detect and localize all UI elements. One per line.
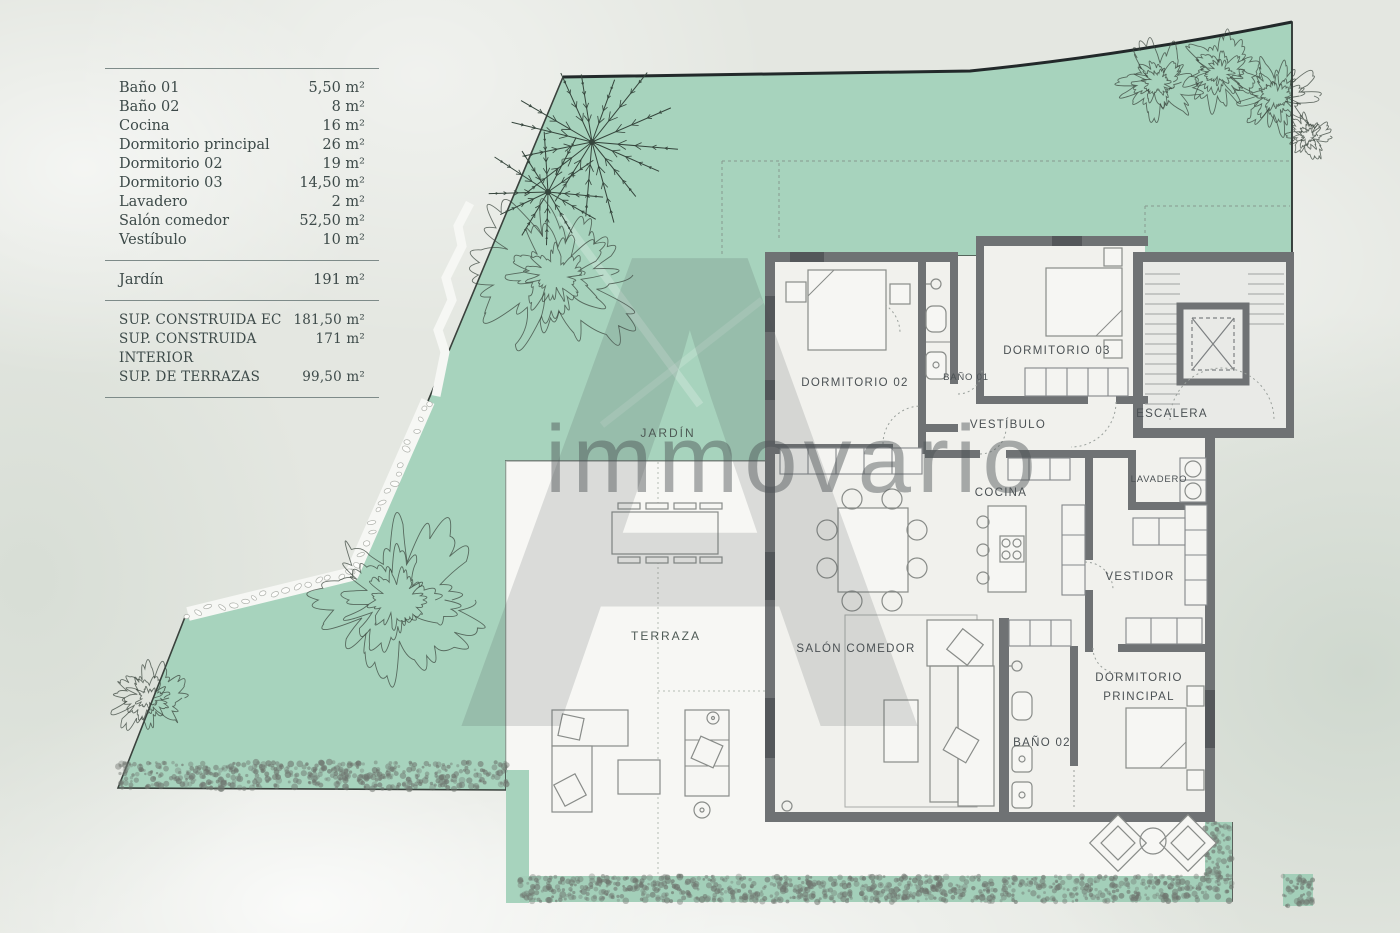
label-bano-01: BAÑO 01 — [943, 372, 989, 383]
legend-label: Dormitorio 02 — [119, 155, 223, 174]
legend-row: SUP. DE TERRAZAS99,50 m² — [119, 368, 365, 387]
label-vestidor: VESTIDOR — [1105, 571, 1174, 583]
legend-value: 5,50 m² — [299, 79, 365, 98]
legend-row: Baño 028 m² — [119, 98, 365, 117]
legend-value: 52,50 m² — [289, 212, 365, 231]
legend-value: 26 m² — [312, 136, 365, 155]
label-escalera: ESCALERA — [1136, 408, 1208, 420]
legend-label: SUP. DE TERRAZAS — [119, 368, 260, 387]
legend-value: 181,50 m² — [283, 311, 365, 330]
label-dormitorio-principal-2: PRINCIPAL — [1103, 691, 1175, 703]
legend-value: 14,50 m² — [289, 174, 365, 193]
legend-label: Vestíbulo — [119, 231, 187, 250]
legend-value: 10 m² — [312, 231, 365, 250]
legend-totals-section: SUP. CONSTRUIDA EC181,50 m² SUP. CONSTRU… — [105, 300, 379, 397]
legend-label: Cocina — [119, 117, 170, 136]
legend-label: Baño 02 — [119, 98, 179, 117]
legend-value: 191 m² — [303, 271, 365, 290]
floorplan-page: JARDÍN TERRAZA DORMITORIO 02 BAÑO 01 DOR… — [0, 0, 1400, 933]
legend-row: Dormitorio 0219 m² — [119, 155, 365, 174]
legend-label: Jardín — [119, 271, 164, 290]
legend-label: SUP. CONSTRUIDA INTERIOR — [119, 330, 306, 368]
legend-label: SUP. CONSTRUIDA EC — [119, 311, 282, 330]
legend-row: Dormitorio 0314,50 m² — [119, 174, 365, 193]
legend-label: Lavadero — [119, 193, 188, 212]
legend-value: 171 m² — [306, 330, 365, 349]
legend-label: Dormitorio principal — [119, 136, 270, 155]
legend-label: Salón comedor — [119, 212, 229, 231]
legend-value: 99,50 m² — [292, 368, 365, 387]
legend-row: Salón comedor52,50 m² — [119, 212, 365, 231]
legend-row: SUP. CONSTRUIDA INTERIOR171 m² — [119, 330, 365, 368]
legend-row: Dormitorio principal26 m² — [119, 136, 365, 155]
label-lavadero: LAVADERO — [1131, 474, 1188, 485]
legend-row: Vestíbulo10 m² — [119, 231, 365, 250]
area-legend: Baño 015,50 m² Baño 028 m² Cocina16 m² D… — [105, 68, 379, 398]
legend-row: SUP. CONSTRUIDA EC181,50 m² — [119, 311, 365, 330]
legend-value: 8 m² — [322, 98, 365, 117]
legend-row: Lavadero2 m² — [119, 193, 365, 212]
legend-label: Baño 01 — [119, 79, 179, 98]
legend-row: Jardín191 m² — [119, 271, 365, 290]
legend-row: Baño 015,50 m² — [119, 79, 365, 98]
legend-value: 16 m² — [312, 117, 365, 136]
legend-garden-section: Jardín191 m² — [105, 260, 379, 300]
label-dormitorio-03: DORMITORIO 03 — [1003, 345, 1110, 357]
watermark-brand: immovario — [545, 406, 1042, 513]
legend-value: 19 m² — [312, 155, 365, 174]
legend-row: Cocina16 m² — [119, 117, 365, 136]
legend-rooms-section: Baño 015,50 m² Baño 028 m² Cocina16 m² D… — [105, 68, 379, 260]
label-dormitorio-principal: DORMITORIO — [1095, 672, 1183, 684]
legend-value: 2 m² — [322, 193, 365, 212]
label-bano-02: BAÑO 02 — [1013, 736, 1071, 749]
legend-label: Dormitorio 03 — [119, 174, 223, 193]
